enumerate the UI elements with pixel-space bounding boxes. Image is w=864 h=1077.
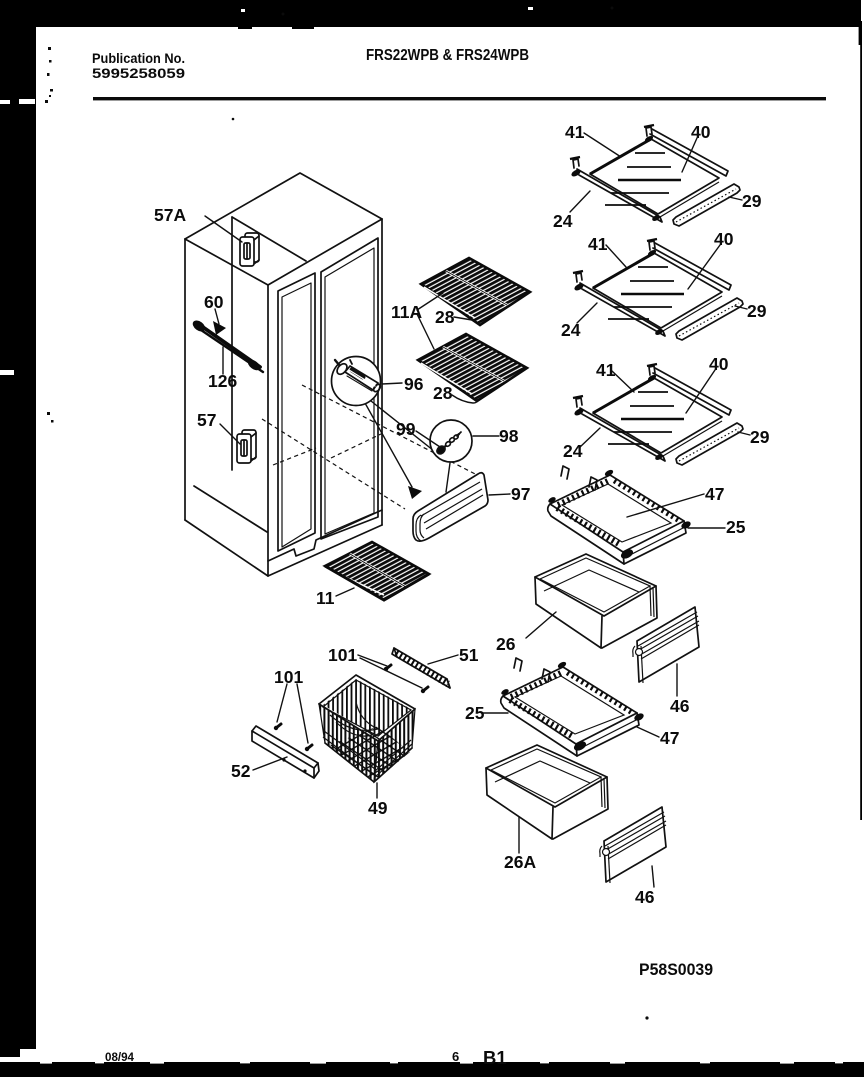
svg-text:51: 51 bbox=[459, 645, 479, 665]
svg-text:28: 28 bbox=[433, 383, 453, 403]
svg-text:96: 96 bbox=[404, 374, 424, 394]
svg-text:46: 46 bbox=[670, 696, 690, 716]
svg-text:60: 60 bbox=[204, 292, 224, 312]
svg-text:41: 41 bbox=[565, 122, 585, 142]
svg-text:101: 101 bbox=[274, 667, 303, 687]
svg-text:47: 47 bbox=[660, 728, 679, 748]
svg-text:46: 46 bbox=[635, 887, 655, 907]
svg-text:Publication No.: Publication No. bbox=[92, 51, 185, 66]
svg-text:57A: 57A bbox=[154, 205, 186, 225]
svg-text:24: 24 bbox=[561, 320, 581, 340]
svg-text:29: 29 bbox=[750, 427, 770, 447]
svg-text:11: 11 bbox=[316, 588, 335, 608]
svg-text:26: 26 bbox=[496, 634, 516, 654]
svg-text:29: 29 bbox=[747, 301, 767, 321]
svg-text:24: 24 bbox=[563, 441, 583, 461]
svg-text:25: 25 bbox=[726, 517, 746, 537]
svg-text:47: 47 bbox=[705, 484, 724, 504]
svg-text:24: 24 bbox=[553, 211, 573, 231]
svg-text:49: 49 bbox=[368, 798, 388, 818]
svg-text:101: 101 bbox=[328, 645, 357, 665]
svg-text:08/94: 08/94 bbox=[105, 1052, 135, 1064]
svg-text:6: 6 bbox=[452, 1049, 459, 1064]
svg-text:52: 52 bbox=[231, 761, 251, 781]
svg-text:40: 40 bbox=[714, 229, 734, 249]
svg-text:41: 41 bbox=[588, 234, 608, 254]
svg-text:29: 29 bbox=[742, 191, 762, 211]
svg-text:26A: 26A bbox=[504, 852, 536, 872]
svg-text:98: 98 bbox=[499, 426, 519, 446]
svg-text:40: 40 bbox=[709, 354, 729, 374]
svg-text:41: 41 bbox=[596, 360, 616, 380]
svg-text:126: 126 bbox=[208, 371, 237, 391]
svg-text:97: 97 bbox=[511, 484, 530, 504]
svg-text:99: 99 bbox=[396, 419, 416, 439]
svg-text:5995258059: 5995258059 bbox=[92, 66, 185, 82]
svg-text:B1: B1 bbox=[483, 1047, 507, 1068]
svg-text:40: 40 bbox=[691, 122, 711, 142]
svg-text:11A: 11A bbox=[391, 302, 422, 322]
svg-text:57: 57 bbox=[197, 410, 216, 430]
svg-text:28: 28 bbox=[435, 307, 455, 327]
svg-text:FRS22WPB & FRS24WPB: FRS22WPB & FRS24WPB bbox=[366, 47, 529, 64]
svg-text:P58S0039: P58S0039 bbox=[639, 960, 713, 979]
svg-text:25: 25 bbox=[465, 703, 485, 723]
